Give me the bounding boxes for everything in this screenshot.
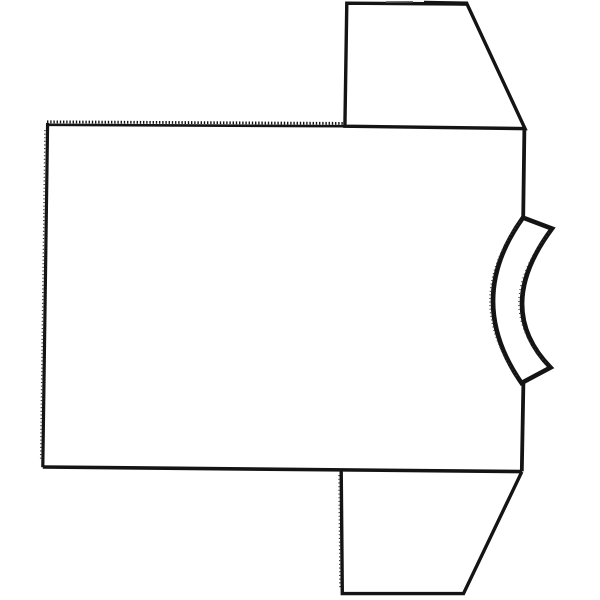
tshirt-pattern-drawing [0,0,600,600]
top-sleeve-outline [345,3,525,128]
body-top-edge [48,125,345,126]
body-bottom-edge [43,467,522,472]
bottom-sleeve-outline [341,471,522,594]
top-sleeve-edge-rough-b [424,3,468,4]
tshirt-pattern-svg [0,0,600,600]
collar-band [493,218,552,383]
body-right-edge-upper [523,128,524,217]
body-left-edge [43,123,48,467]
body-top-edge-serration [47,122,345,124]
body-right-edge-lower [522,383,524,472]
